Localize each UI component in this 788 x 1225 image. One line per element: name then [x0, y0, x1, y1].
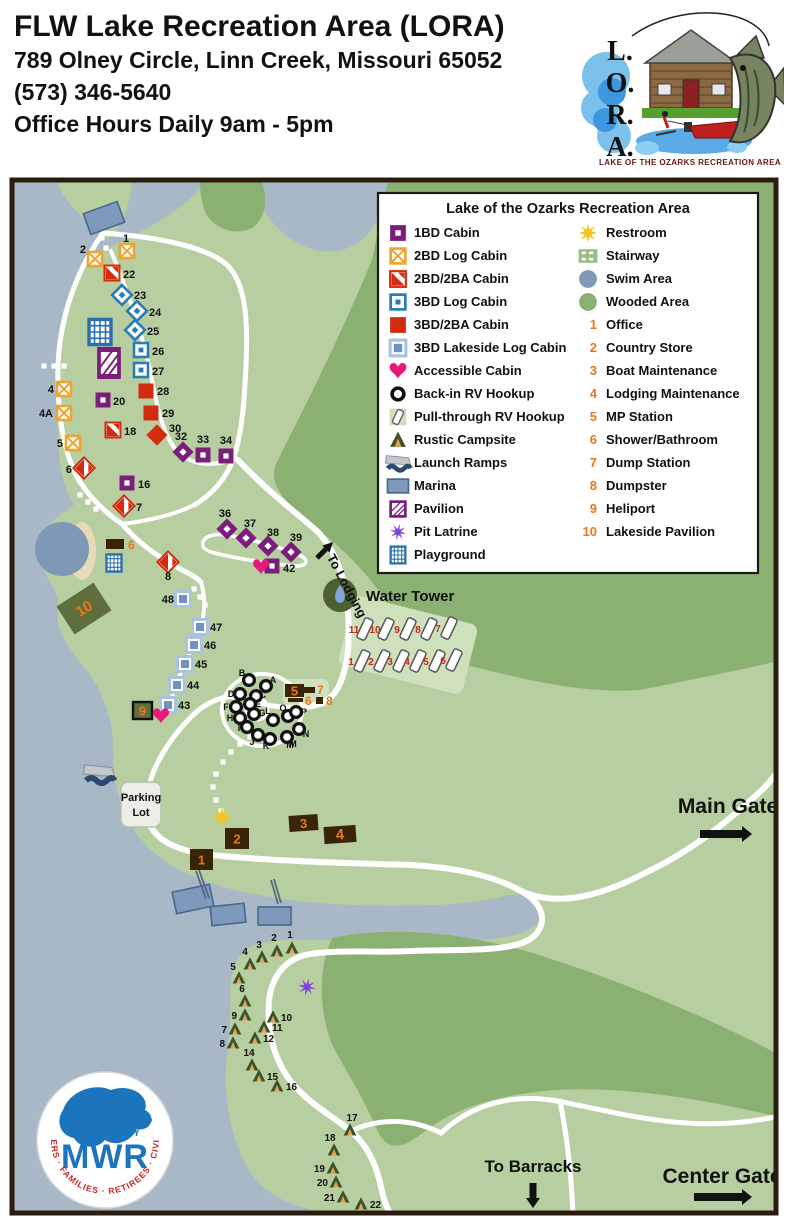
facility-4: 4	[323, 825, 356, 845]
rect	[210, 784, 215, 789]
rv-backin-site-P	[291, 707, 302, 718]
cabin-number: 7	[136, 502, 142, 514]
legend-icon-cabin-2bd2ba	[390, 271, 406, 287]
cabin-number: 24	[149, 307, 162, 319]
page: FLW Lake Recreation Area (LORA) 789 Olne…	[0, 0, 788, 1225]
cabin-1bd-marker-16	[120, 476, 135, 491]
facility-number: 3	[299, 816, 307, 831]
cabin-number: 16	[138, 479, 150, 491]
rv-backin-letter: I	[238, 723, 241, 733]
rect	[196, 623, 204, 631]
legend-label: 2BD Log Cabin	[414, 248, 507, 263]
campsite-number: 6	[239, 984, 245, 995]
rect	[213, 797, 218, 802]
legend-label: 2BD/2BA Cabin	[414, 271, 509, 286]
rect	[191, 586, 196, 591]
dock	[258, 907, 291, 925]
legend-title: Lake of the Ozarks Recreation Area	[446, 201, 691, 217]
rv-pullthrough-number: 5	[423, 657, 429, 668]
facility-number: 2	[233, 832, 240, 847]
rect	[200, 452, 205, 457]
cabin-number: 25	[147, 326, 159, 338]
cabin-lakeside-marker-45	[178, 657, 193, 672]
cabin-number: 33	[197, 434, 209, 446]
facility-number: 6	[305, 694, 312, 708]
campsite-number: 3	[256, 940, 262, 951]
legend-icon-stairway	[579, 249, 598, 263]
cabin-number: 18	[124, 426, 136, 438]
legend-number: 7	[590, 455, 597, 470]
legend-label: Launch Ramps	[414, 455, 507, 470]
legend-label: Office	[606, 317, 643, 332]
legend-label: Rustic Campsite	[414, 432, 516, 447]
campsite-number: 16	[286, 1082, 298, 1093]
legend-number: 8	[590, 478, 597, 493]
cabin-number: 37	[244, 518, 256, 530]
legend-label: Pit Latrine	[414, 524, 478, 539]
cabin-number: 45	[195, 659, 207, 671]
rect	[190, 641, 198, 649]
playground-marker	[89, 319, 111, 344]
cabin-number: 20	[113, 396, 125, 408]
cabin-number: 2	[80, 244, 86, 256]
facility-number: 9	[139, 704, 146, 719]
cabin-3bd2ba-icon	[144, 406, 159, 421]
legend-number: 10	[583, 524, 597, 539]
restroom-sun-icon	[579, 224, 598, 243]
legend-label: Playground	[414, 547, 486, 562]
legend-icon-launch	[385, 456, 410, 471]
launch-ramps-marker	[83, 765, 114, 783]
cabin-number: 1	[123, 233, 129, 245]
rv-backin-letter: Q	[279, 703, 286, 713]
rv-backin-site-L	[268, 715, 279, 726]
campsite-number: 5	[230, 962, 236, 973]
legend-label: 3BD Lakeside Log Cabin	[414, 340, 566, 355]
cabin-1bd-marker-33	[196, 448, 211, 463]
rv-backin-letter: P	[301, 707, 307, 717]
cabin-number: 44	[187, 680, 200, 692]
rect	[99, 235, 104, 240]
cabin-number: 4A	[39, 408, 53, 420]
legend-label: Marina	[414, 478, 457, 493]
cabin-number: 29	[162, 408, 174, 420]
legend-icon-cabin-3bd	[391, 295, 406, 310]
legend-label: Wooded Area	[606, 294, 690, 309]
rv-pullthrough-number: 8	[415, 625, 421, 636]
rv-backin-letter: F	[223, 702, 229, 712]
rv-backin-letter: K	[263, 741, 270, 751]
cabin-number: 4	[48, 384, 55, 396]
legend-label: Dump Station	[606, 455, 691, 470]
rect	[394, 344, 402, 352]
rv-backin-site-D	[235, 689, 246, 700]
rect	[173, 681, 181, 689]
legend-icon-swim	[579, 270, 597, 288]
rv-pullthrough-number: 9	[394, 625, 400, 636]
cabin-3bd2ba-icon	[390, 317, 406, 333]
rect	[228, 749, 233, 754]
facility-1: 1	[190, 849, 213, 870]
legend-icon-marina	[388, 479, 409, 493]
rv-backin-site-I	[242, 722, 253, 733]
rect	[139, 348, 144, 353]
map-label-center-gate: Center Gate	[662, 1165, 781, 1188]
legend-number: 9	[590, 501, 597, 516]
cabin-number: 23	[134, 290, 146, 302]
cabin-2bd-marker-2	[88, 252, 102, 266]
cabin-1bd-marker-20	[96, 393, 111, 408]
legend-label: Country Store	[606, 340, 693, 355]
facility-number: 5	[291, 684, 298, 699]
mwr-logo: U.S. ARMY MWR SOLDIERS · FAMILIES · RETI…	[37, 1072, 173, 1208]
rect	[395, 299, 400, 304]
rv-backin-letter: A	[270, 675, 277, 685]
rv-pullthrough-number: 4	[404, 657, 410, 668]
cabin-number: 39	[290, 532, 302, 544]
cabin-number: 32	[175, 431, 187, 443]
facility-5: 5	[285, 684, 304, 699]
cabin-2bd-marker-4	[57, 382, 71, 396]
campsite-number: 18	[324, 1133, 336, 1144]
cabin-number: 46	[204, 640, 216, 652]
facility-number: 8	[326, 694, 333, 708]
cabin-number: 27	[152, 366, 164, 378]
legend-icon-cabin-2bd	[391, 249, 406, 264]
facility-building	[304, 687, 315, 693]
campsite-number: 17	[346, 1113, 358, 1124]
rect	[164, 701, 172, 709]
rv-backin-letter: H	[227, 713, 234, 723]
cabin-number: 22	[123, 269, 135, 281]
legend-icon-rv-pullthrough	[390, 409, 407, 426]
campsite-number: 19	[314, 1164, 326, 1175]
legend-icon-playground	[391, 547, 406, 564]
cabin-3bd2ba-marker-28	[139, 384, 154, 399]
facility-number: 7	[317, 683, 324, 697]
pavilion-icon	[99, 350, 119, 377]
rect	[61, 363, 66, 368]
rect	[77, 492, 82, 497]
cabin-number: 34	[220, 435, 233, 447]
facility-3: 3	[288, 814, 318, 832]
rect	[220, 759, 225, 764]
cabin-number: 42	[283, 563, 295, 575]
legend-number: 6	[590, 432, 597, 447]
cabin-number: 38	[267, 527, 279, 539]
map-canvas: ParkingLot1234576869101110987123456BADCF…	[0, 0, 788, 1225]
cabin-number: 28	[157, 386, 169, 398]
facility-building	[106, 539, 124, 549]
legend-label: Lodging Maintenance	[606, 386, 740, 401]
parking-lot	[121, 782, 161, 827]
marina-icon	[388, 479, 409, 493]
rect	[41, 363, 46, 368]
cabin-3bd-marker-26	[134, 343, 148, 357]
campsite-number: 4	[242, 947, 248, 958]
rect	[237, 741, 242, 746]
facility-2: 2	[225, 828, 249, 849]
swim-area	[35, 522, 89, 576]
campsite-number: 11	[272, 1023, 283, 1034]
facility-9: 9	[133, 702, 152, 719]
rv-backin-icon	[392, 388, 404, 400]
rv-pullthrough-number: 2	[368, 657, 374, 668]
legend-icon-pavilion	[391, 502, 406, 517]
rect	[223, 453, 228, 458]
cabin-number: 6	[66, 464, 72, 476]
cabin-2bd-marker-4A	[57, 406, 71, 420]
legend-icon-restroom	[579, 224, 598, 243]
map-label-water-tower: Water Tower	[366, 588, 455, 605]
campsite-number: 10	[281, 1013, 293, 1024]
rect	[85, 499, 90, 504]
mwr-name: MWR	[61, 1138, 149, 1176]
legend-label: Pavilion	[414, 501, 464, 516]
campsite-number: 21	[324, 1193, 336, 1204]
campsite-number: 1	[287, 930, 293, 941]
pavilion-icon	[391, 502, 406, 517]
campsite-number: 2	[271, 933, 277, 944]
legend-label: Back-in RV Hookup	[414, 386, 534, 401]
rect	[395, 230, 400, 235]
legend-label: Lakeside Pavilion	[606, 524, 715, 539]
cabin-number: 26	[152, 346, 164, 358]
cabin-2bd-marker-1	[120, 244, 134, 258]
legend-number: 5	[590, 409, 597, 424]
campsite-number: 7	[221, 1025, 227, 1036]
rect	[197, 594, 202, 599]
legend-label: Pull-through RV Hookup	[414, 409, 565, 424]
cabin-lakeside-marker-44	[170, 678, 185, 693]
rect	[139, 368, 144, 373]
rv-backin-letter: L	[265, 706, 271, 716]
legend-label: 1BD Cabin	[414, 225, 480, 240]
legend-number: 3	[590, 363, 597, 378]
legend-icon-cabin-lakeside	[390, 340, 406, 356]
rv-backin-letter: B	[239, 668, 246, 678]
legend-icon-cabin-3bd2ba	[390, 317, 406, 333]
facility-building	[316, 697, 323, 704]
cabin-3bd2ba-marker-29	[144, 406, 159, 421]
legend-number: 4	[590, 386, 598, 401]
launch-icon	[385, 456, 410, 465]
stairway-path	[41, 363, 66, 368]
cabin-number: 8	[165, 571, 171, 583]
rv-pullthrough-number: 1	[348, 657, 354, 668]
rv-backin-letter: D	[228, 689, 235, 699]
campsite-number: 20	[317, 1178, 329, 1189]
cabin-lakeside-marker-46	[187, 638, 202, 653]
parking-lot-label: Lot	[132, 807, 149, 819]
facility-building	[288, 698, 303, 702]
cabin-number: 47	[210, 622, 222, 634]
rv-backin-letter: J	[249, 737, 254, 747]
cabin-2bd2ba-marker-22	[105, 266, 120, 281]
pavilion-marker	[99, 350, 119, 377]
cabin-2bd-marker-5	[66, 436, 80, 450]
campsite-number: 12	[263, 1034, 275, 1045]
legend-label: Heliport	[606, 501, 656, 516]
rv-pullthrough-number: 3	[387, 657, 393, 668]
cabin-2bd2ba-marker-18	[106, 423, 121, 438]
rect	[100, 397, 105, 402]
rv-backin-site-F	[231, 702, 242, 713]
cabin-number: 36	[219, 508, 231, 520]
legend-label: Swim Area	[606, 271, 673, 286]
map-label-m: M	[286, 740, 294, 750]
legend-label: 3BD Log Cabin	[414, 294, 507, 309]
cabin-3bd-marker-27	[134, 363, 148, 377]
dock	[210, 903, 246, 925]
rect	[202, 602, 207, 607]
rv-pullthrough-number: 11	[349, 625, 360, 636]
legend-label: MP Station	[606, 409, 673, 424]
legend-icon-rv-backin	[392, 388, 404, 400]
map-label-main-gate: Main Gate	[678, 795, 778, 818]
playground-marker	[107, 554, 122, 571]
rv-backin-letter: N	[303, 729, 310, 739]
cabin-number: 43	[178, 700, 190, 712]
rect	[124, 480, 129, 485]
restroom-marker	[212, 807, 232, 827]
legend-label: Restroom	[606, 225, 667, 240]
legend-label: Stairway	[606, 248, 660, 263]
rect	[269, 563, 274, 568]
legend-label: 3BD/2BA Cabin	[414, 317, 509, 332]
legend-label: Boat Maintenance	[606, 363, 717, 378]
legend-icon-cabin-1bd	[390, 225, 406, 241]
campsite-number: 8	[219, 1039, 225, 1050]
rv-pullthrough-number: 6	[440, 656, 446, 667]
rect	[103, 245, 108, 250]
facility-number: 6	[128, 538, 135, 552]
rect	[181, 660, 189, 668]
map-label-to-barracks: To Barracks	[484, 1157, 581, 1176]
rect	[51, 363, 56, 368]
cabin-3bd2ba-icon	[139, 384, 154, 399]
launch-icon	[83, 765, 114, 777]
legend-icon-wooded	[579, 293, 597, 311]
rect	[179, 595, 187, 603]
cabin-number: 5	[57, 438, 63, 450]
cabin-lakeside-marker-47	[193, 620, 208, 635]
parking-lot-label: Parking	[121, 792, 161, 804]
campsite-number: 14	[243, 1048, 255, 1059]
rv-pullthrough-number: 10	[369, 625, 381, 636]
swim-area-icon	[579, 270, 597, 288]
rect	[213, 771, 218, 776]
legend-number: 2	[590, 340, 597, 355]
rect	[93, 506, 98, 511]
cabin-lakeside-marker-48	[176, 592, 191, 607]
campsite-number: 9	[231, 1011, 237, 1022]
legend-label: Shower/Bathroom	[606, 432, 718, 447]
campsite-number: 22	[370, 1200, 382, 1211]
stairway-icon	[579, 249, 598, 263]
rv-pullthrough-number: 7	[435, 624, 441, 635]
legend-number: 1	[590, 317, 597, 332]
wooded-area-icon	[579, 293, 597, 311]
legend-label: Accessible Cabin	[414, 363, 522, 378]
cabin-1bd-marker-34	[219, 449, 234, 464]
facility-number: 1	[198, 853, 205, 868]
cabin-number: 48	[162, 594, 174, 606]
map-legend: Lake of the Ozarks Recreation Area1BD Ca…	[378, 193, 758, 573]
legend-label: Dumpster	[606, 478, 667, 493]
